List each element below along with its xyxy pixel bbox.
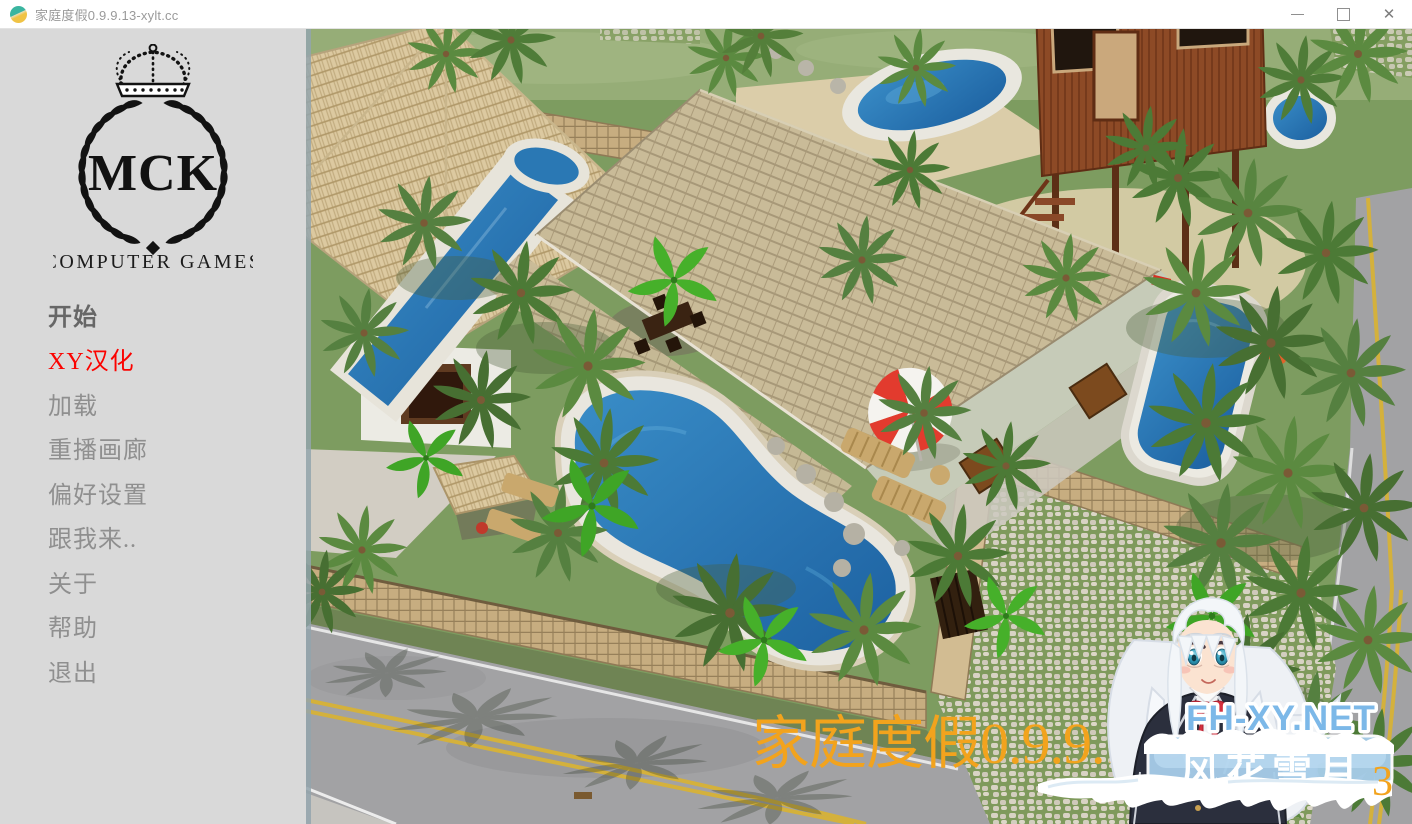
logo-monogram: MCK — [88, 145, 218, 202]
window-controls: ✕ — [1274, 0, 1412, 28]
mck-logo: MCK COMPUTER GAMES — [53, 44, 253, 272]
main-menu: 开始 XY汉化 加载 重播画廊 偏好设置 跟我来.. 关于 帮助 退出 — [0, 292, 306, 693]
menu-item-quit[interactable]: 退出 — [0, 648, 306, 693]
menu-item-replay-gallery[interactable]: 重播画廊 — [0, 426, 306, 471]
close-icon: ✕ — [1383, 5, 1396, 23]
main-menu-sidebar: MCK COMPUTER GAMES 开始 XY汉化 加载 重播画廊 偏好设置 … — [0, 28, 306, 824]
maximize-button[interactable] — [1320, 0, 1366, 28]
menu-item-follow-me[interactable]: 跟我来.. — [0, 515, 306, 560]
site-watermark: FH-XY.NET 风花雪月 — [1028, 686, 1412, 824]
crown-icon — [117, 44, 190, 96]
minimize-button[interactable] — [1274, 0, 1320, 28]
maximize-icon — [1337, 8, 1350, 21]
minimize-icon — [1291, 14, 1304, 15]
logo-subtitle: COMPUTER GAMES — [53, 251, 253, 272]
menu-item-start[interactable]: 开始 — [0, 292, 306, 337]
menu-item-preferences[interactable]: 偏好设置 — [0, 470, 306, 515]
close-button[interactable]: ✕ — [1366, 0, 1412, 28]
version-fragment: 3 — [1372, 758, 1393, 806]
menu-item-about[interactable]: 关于 — [0, 559, 306, 604]
title-bar: 家庭度假0.9.9.13-xylt.cc ✕ — [0, 0, 1412, 29]
game-window: 家庭度假0.9.9.13-xylt.cc ✕ — [0, 0, 1412, 824]
snow-ledge — [1038, 774, 1392, 810]
menu-item-load[interactable]: 加载 — [0, 381, 306, 426]
app-icon — [10, 6, 27, 23]
window-title: 家庭度假0.9.9.13-xylt.cc — [35, 5, 178, 24]
menu-item-xy-locale[interactable]: XY汉化 — [0, 337, 306, 382]
menu-item-help[interactable]: 帮助 — [0, 604, 306, 649]
